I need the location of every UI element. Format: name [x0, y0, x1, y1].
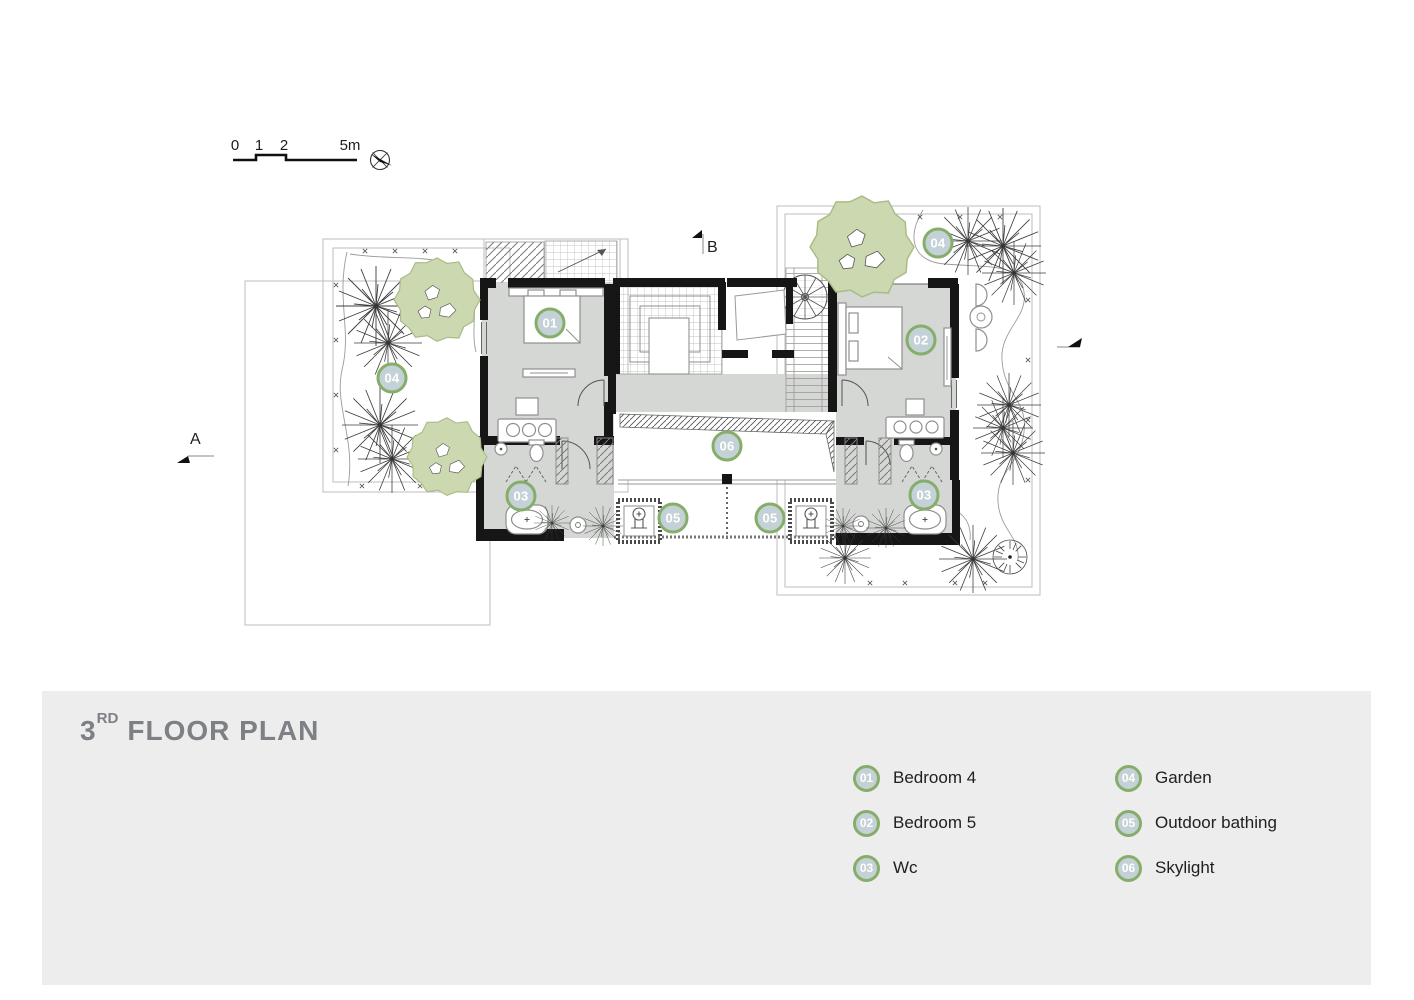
svg-text:05: 05: [762, 511, 777, 526]
svg-text:04: 04: [384, 371, 400, 386]
svg-text:03: 03: [916, 488, 931, 503]
legend-label-bedroom5: Bedroom 5: [893, 813, 976, 833]
legend-item-bedroom5: 02 Bedroom 5: [853, 810, 976, 836]
legend-item-outdoor-bathing: 05 Outdoor bathing: [1115, 810, 1277, 836]
legend-label-wc: Wc: [893, 858, 918, 878]
svg-text:05: 05: [665, 511, 680, 526]
svg-text:01: 01: [542, 316, 557, 331]
svg-text:B: B: [707, 239, 718, 256]
legend-column-right: 04 Garden 05 Outdoor bathing 06 Skylight: [1115, 765, 1277, 881]
north-arrow-icon: [371, 151, 393, 170]
legend-badge-05: 05: [1115, 810, 1142, 837]
marker-06: 06: [713, 432, 741, 460]
svg-text:02: 02: [913, 333, 928, 348]
page-title: 3RDFLOOR PLAN: [80, 715, 319, 747]
marker-01: 01: [536, 309, 564, 337]
marker-05-right: 05: [756, 504, 784, 532]
legend-label-garden: Garden: [1155, 768, 1212, 788]
marker-03-left: 03: [507, 482, 535, 510]
svg-text:A: A: [190, 431, 201, 448]
legend-label-outdoor-bathing: Outdoor bathing: [1155, 813, 1277, 833]
svg-text:04: 04: [930, 236, 946, 251]
legend-band: 3RDFLOOR PLAN 01 Bedroom 4 02 Bedroom 5 …: [42, 691, 1371, 985]
svg-text:06: 06: [719, 439, 734, 454]
legend-badge-03: 03: [853, 855, 880, 882]
section-marker-right: [1057, 338, 1082, 347]
marker-05-left: 05: [659, 504, 687, 532]
section-marker-a: A: [177, 431, 214, 463]
marker-04-right: 04: [924, 229, 952, 257]
legend-item-garden: 04 Garden: [1115, 765, 1277, 791]
svg-text:5m: 5m: [340, 137, 361, 154]
svg-text:1: 1: [255, 137, 263, 154]
svg-text:03: 03: [513, 489, 528, 504]
legend-label-bedroom4: Bedroom 4: [893, 768, 976, 788]
legend-item-wc: 03 Wc: [853, 855, 976, 881]
svg-text:2: 2: [280, 137, 288, 154]
title-number: 3: [80, 715, 97, 746]
marker-04-left: 04: [378, 364, 406, 392]
section-marker-b: B: [692, 230, 718, 256]
svg-text:0: 0: [231, 137, 239, 154]
legend-badge-02: 02: [853, 810, 880, 837]
marker-03-right: 03: [910, 481, 938, 509]
legend-column-left: 01 Bedroom 4 02 Bedroom 5 03 Wc: [853, 765, 976, 881]
legend-item-skylight: 06 Skylight: [1115, 855, 1277, 881]
title-ordinal: RD: [97, 710, 119, 727]
legend-badge-01: 01: [853, 765, 880, 792]
scale-bar: 0 1 2 5m: [231, 137, 361, 160]
page: 0 1 2 5m B A: [0, 0, 1414, 1000]
legend-badge-04: 04: [1115, 765, 1142, 792]
legend-item-bedroom4: 01 Bedroom 4: [853, 765, 976, 791]
floor-plan-drawing: 0 1 2 5m B A: [0, 0, 1414, 690]
legend-label-skylight: Skylight: [1155, 858, 1215, 878]
legend-badge-06: 06: [1115, 855, 1142, 882]
title-rest: FLOOR PLAN: [127, 715, 319, 746]
outdoor-bathing-areas: [614, 487, 836, 542]
marker-02: 02: [907, 326, 935, 354]
